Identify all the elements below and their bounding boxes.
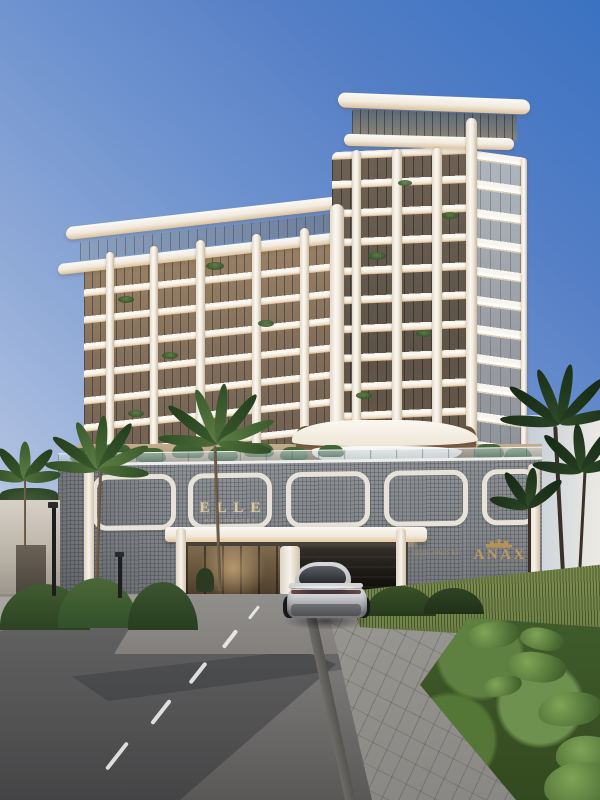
palm-trunk (24, 478, 26, 550)
balcony-plant (118, 296, 134, 303)
car-taillight-bar (291, 590, 361, 594)
balcony-plant (416, 330, 432, 337)
podium-arch-frame (286, 471, 370, 528)
balcony-plant (356, 392, 372, 399)
palm-tree (64, 436, 136, 596)
wave-canopy-upper (292, 420, 478, 446)
palm-tree (178, 408, 258, 598)
developed-by-text: DEVELOPED BY (412, 551, 460, 556)
balcony-plant (258, 320, 274, 327)
balcony-plant (128, 410, 144, 417)
palm-tree-small (2, 452, 50, 562)
balcony-plant (368, 252, 386, 260)
podium-arch-frame (384, 470, 468, 527)
scene: ELLE RESIDENCES DEVELOPED BY ANAX DEVELO… (0, 0, 600, 800)
car-rear-bumper (291, 604, 361, 616)
palm-trunk (95, 470, 102, 592)
balcony-plant (206, 262, 224, 270)
facade-corner-pier (466, 118, 477, 470)
balcony-plant (398, 180, 412, 186)
streetlight-head (48, 502, 58, 508)
facade-pier (150, 246, 158, 468)
bollard-cap (115, 552, 124, 557)
silver-coupe-car (283, 558, 371, 632)
bollard-light (118, 556, 122, 598)
facade-pier (432, 148, 442, 468)
palm-trunk (213, 446, 221, 591)
streetlight-pole (52, 506, 56, 596)
balcony-plant (162, 352, 178, 359)
balcony-plant (442, 212, 458, 219)
car-highlight (295, 586, 355, 589)
